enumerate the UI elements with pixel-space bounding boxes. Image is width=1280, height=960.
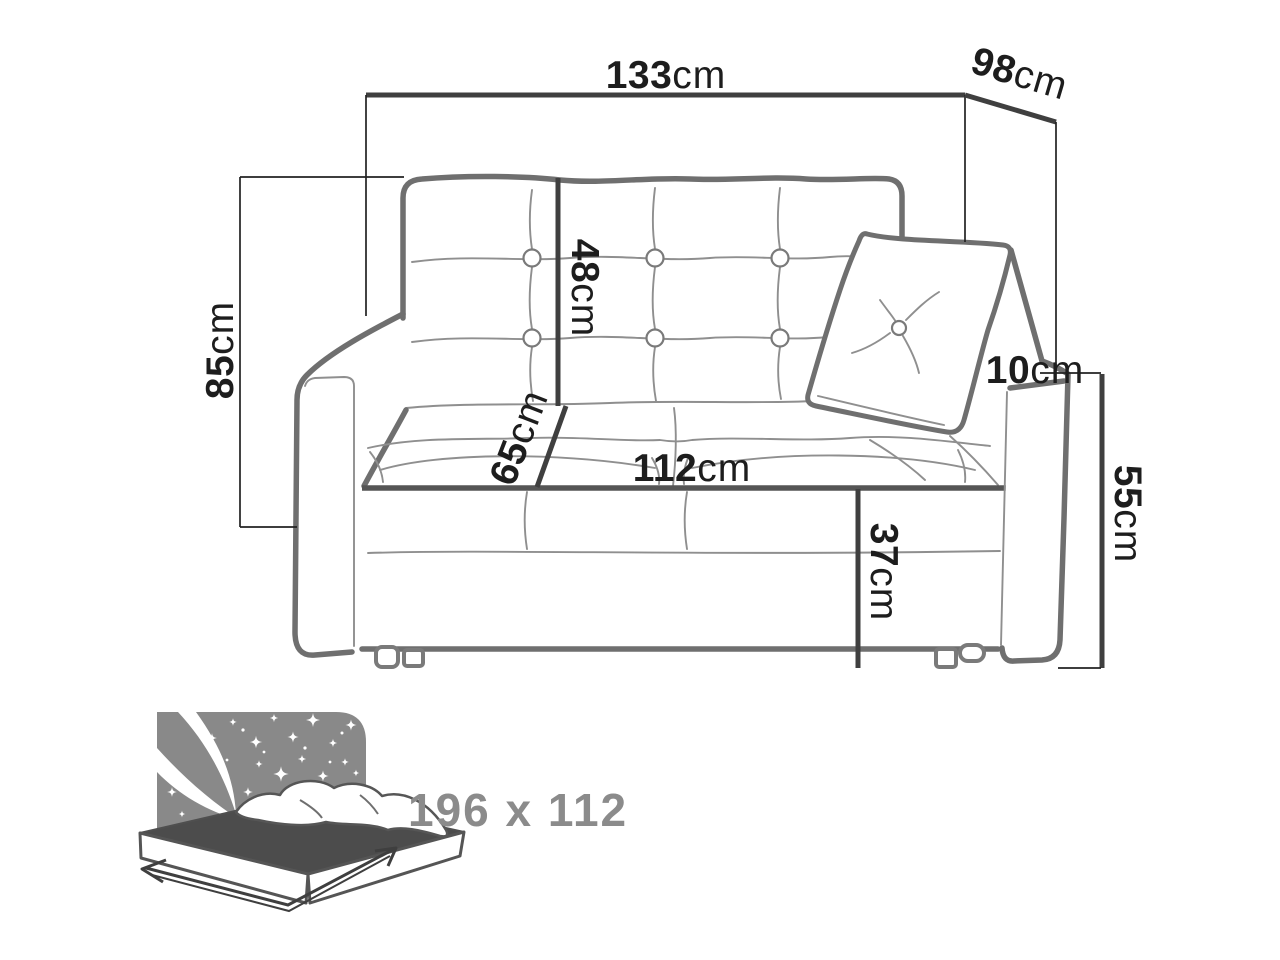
dimension-label: 37cm: [862, 523, 905, 621]
dimension-armrest-width: 10cm: [986, 349, 1101, 392]
leg: [404, 650, 423, 666]
tuft-button: [647, 250, 664, 267]
tuft-button: [647, 330, 664, 347]
dimension-label: 10cm: [986, 349, 1084, 392]
dimension-armrest-height: 55cm: [1058, 374, 1149, 668]
dimension-label: 55cm: [1106, 465, 1149, 563]
tuft-button: [524, 250, 541, 267]
dimension-label: 112cm: [633, 447, 751, 490]
sofa-illustration: [295, 176, 1070, 667]
leg: [936, 649, 956, 667]
leg: [376, 647, 398, 667]
dimension-label: 133cm: [606, 54, 727, 97]
diagram-canvas: 133cm 98cm 85cm 48cm 65cm 112cm: [0, 0, 1280, 960]
sleeping-area: 196 x 112: [140, 712, 628, 911]
base-panel: [360, 488, 1008, 649]
right-armrest: [1001, 250, 1070, 661]
pillow-button: [892, 321, 906, 335]
tuft-button: [772, 250, 789, 267]
tuft-button: [524, 330, 541, 347]
dimension-label: 48cm: [563, 239, 606, 337]
sleeping-area-size-label: 196 x 112: [408, 784, 628, 836]
dimension-label: 85cm: [199, 301, 242, 399]
dimension-seat-width: 112cm: [633, 447, 751, 490]
sofa-dimensions-diagram: 133cm 98cm 85cm 48cm 65cm 112cm: [0, 0, 1280, 960]
tuft-button: [772, 330, 789, 347]
leg: [960, 645, 984, 661]
